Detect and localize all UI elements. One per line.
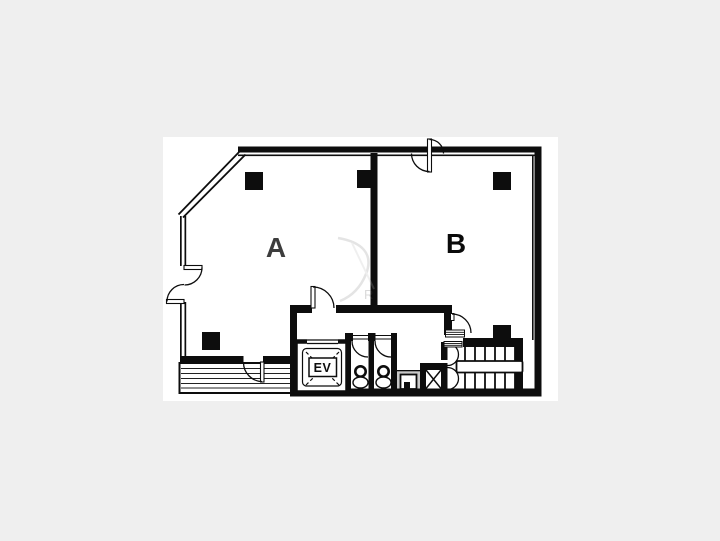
pillar-stair-top bbox=[493, 325, 511, 339]
stair-handrail bbox=[457, 361, 523, 373]
toilet-right-wall bbox=[391, 333, 397, 389]
sink-area bbox=[397, 370, 420, 389]
shaft-right-wall bbox=[441, 363, 448, 396]
room-b-label: B bbox=[446, 228, 466, 259]
core-top-wall-right bbox=[336, 305, 452, 313]
elevator-label: EV bbox=[314, 361, 332, 375]
pillar-a-top-left bbox=[245, 172, 263, 190]
watermark-letter: R bbox=[364, 287, 373, 302]
left-wall-upper-outer bbox=[180, 216, 182, 266]
top-wall bbox=[238, 147, 542, 153]
toilet-middle-wall bbox=[369, 340, 375, 389]
elevator: EV bbox=[296, 338, 348, 393]
right-wall bbox=[535, 147, 542, 397]
toilet-front-pier-2 bbox=[368, 333, 376, 341]
left-wall-lower-outer bbox=[180, 302, 182, 357]
elevator-door-gap bbox=[307, 338, 338, 346]
room-a-bottom-wall-left bbox=[180, 356, 244, 364]
stair-top-wall bbox=[463, 338, 523, 347]
top-wall-inner-line bbox=[238, 155, 542, 157]
pillar-a-top-right bbox=[357, 170, 371, 188]
left-wall-lower-inner bbox=[185, 302, 187, 357]
floor-plan-page: EV bbox=[0, 0, 720, 541]
pillar-a-bottom-left bbox=[202, 332, 220, 350]
right-wall-inner-line bbox=[532, 156, 534, 340]
left-wall-upper-inner bbox=[185, 216, 187, 266]
toilet-front-pier-3 bbox=[391, 333, 397, 341]
balcony bbox=[180, 363, 292, 393]
floor-plan-image: EV bbox=[0, 0, 720, 541]
room-a-label: A bbox=[266, 232, 286, 263]
pillar-b-top-right bbox=[493, 172, 511, 190]
